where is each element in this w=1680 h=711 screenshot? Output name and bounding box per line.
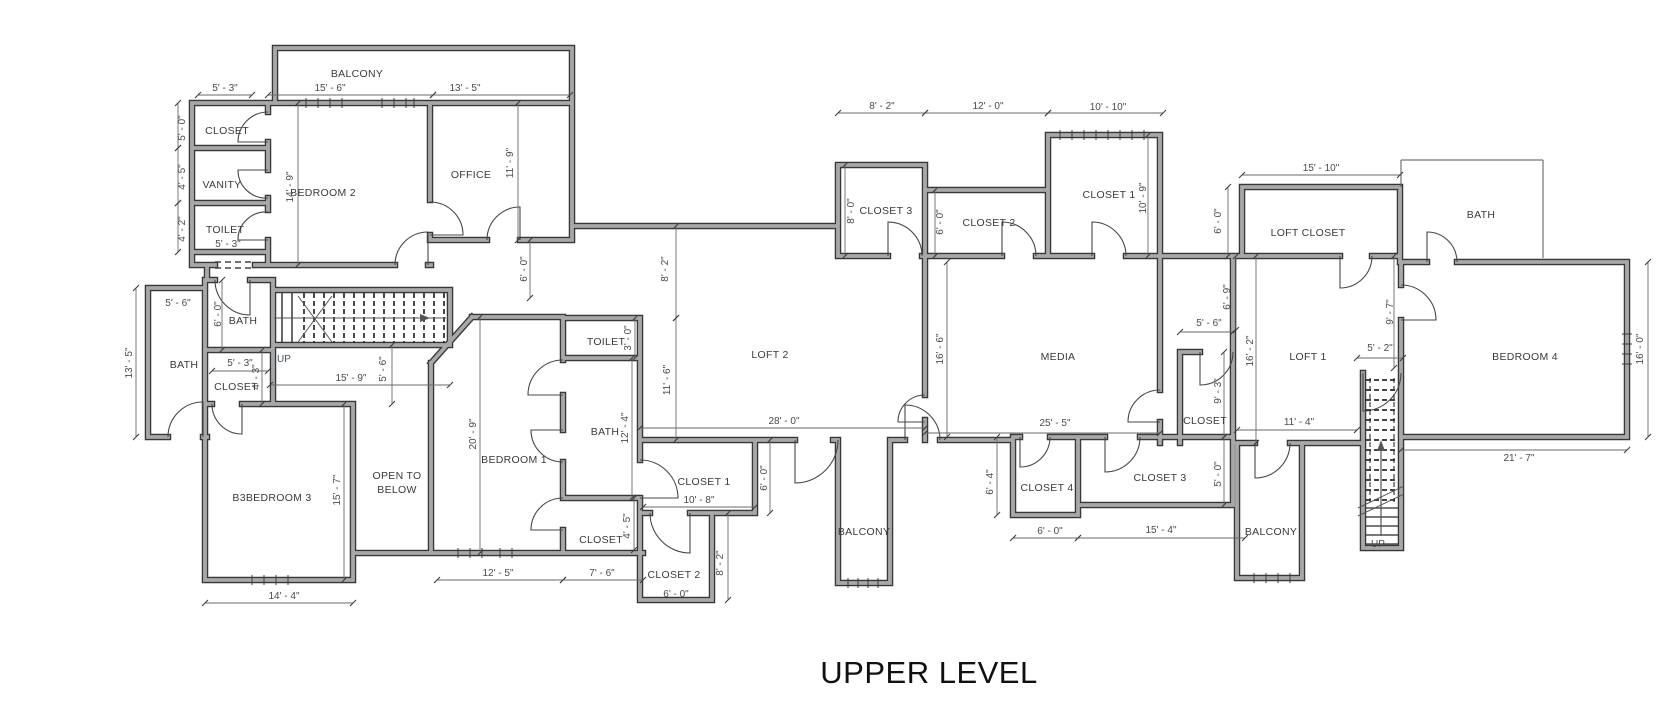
room-label: LOFT 2: [751, 349, 788, 361]
dim-label: 4' - 3": [251, 364, 262, 390]
dim-label: 5' - 6": [378, 356, 389, 382]
room-label: BATH: [591, 426, 619, 438]
dim-label: 14' - 9": [285, 171, 296, 202]
room-label: CLOSET: [205, 125, 249, 137]
dim-label: 9' - 7": [1385, 299, 1396, 325]
room-label: MEDIA: [1041, 351, 1076, 363]
dim-label: 20' - 9": [468, 418, 479, 449]
dim-label: 6' - 0": [1213, 208, 1224, 234]
room-label: CLOSET 2: [963, 217, 1016, 229]
room-label: TOILET: [206, 224, 245, 236]
stairs-up-label: UP: [277, 354, 291, 365]
room-label: B3BEDROOM 3: [232, 492, 311, 504]
dim-label: 14' - 4": [268, 591, 299, 602]
dim-label: 8' - 2": [660, 256, 671, 282]
dim-label: 12' - 4": [620, 412, 631, 443]
room-label: LOFT CLOSET: [1271, 227, 1346, 239]
dim-label: 12' - 5": [482, 568, 513, 579]
dim-label: 6' - 0": [759, 465, 770, 491]
room-label: BEDROOM 2: [290, 187, 356, 199]
stair-arrowhead: [420, 314, 430, 322]
door-swings-layer: [168, 112, 1457, 553]
dim-label: 4' - 2": [177, 216, 188, 242]
dim-label: 15' - 4": [1145, 525, 1176, 536]
door-swing: [531, 498, 563, 530]
dim-label: 11' - 6": [662, 364, 673, 395]
dim-label: 5' - 0": [1213, 461, 1224, 487]
room-label: BATH: [229, 315, 257, 327]
dim-label: 8' - 2": [869, 101, 895, 112]
door-swing: [1401, 285, 1436, 320]
room-label: OPEN TO: [373, 470, 422, 482]
dim-label: 7' - 6": [589, 568, 615, 579]
dim-label: 5' - 3": [227, 358, 253, 369]
dim-label: 9' - 3": [1213, 378, 1224, 404]
dim-label: 5' - 6": [165, 298, 191, 309]
room-label: BALCONY: [838, 526, 890, 538]
door-swing: [1092, 222, 1126, 256]
dim-label: 15' - 7": [332, 474, 343, 505]
door-swing: [1255, 443, 1290, 478]
dim-label: 6' - 0": [1037, 526, 1063, 537]
dim-label: 5' - 2": [1367, 343, 1393, 354]
room-label: VANITY: [203, 179, 242, 191]
floor-plan-drawing: BALCONYCLOSETVANITYTOILETBEDROOM 2OFFICE…: [0, 0, 1680, 711]
dim-label: 3' - 0": [623, 325, 634, 351]
dim-label: 6' - 9": [1222, 284, 1233, 310]
stair-arrowhead: [1377, 440, 1385, 451]
door-swing: [640, 460, 678, 498]
dim-label: 5' - 0": [177, 115, 188, 141]
dim-label: 6' - 4": [985, 469, 996, 495]
door-swing: [168, 402, 203, 437]
walls-outline: [148, 48, 1627, 600]
walls-outline-layer: [148, 48, 1627, 600]
dim-label: 4' - 5": [177, 164, 188, 190]
room-label: CLOSET 3: [1134, 472, 1187, 484]
plan-title: UPPER LEVEL: [820, 655, 1037, 690]
dim-label: 16' - 2": [1245, 335, 1256, 366]
dim-label: 15' - 9": [335, 373, 366, 384]
dim-label: 13' - 5": [124, 347, 135, 378]
room-label: CLOSET: [579, 534, 623, 546]
dim-label: 25' - 5": [1039, 418, 1070, 429]
room-label: OFFICE: [451, 169, 491, 181]
room-dim-label: 10' - 8": [683, 495, 714, 506]
door-swing: [888, 222, 922, 256]
dim-label: 6' - 0": [519, 256, 530, 282]
door-swing: [238, 170, 268, 198]
dim-label: 10' - 9": [1138, 182, 1149, 213]
door-swing: [1427, 232, 1457, 262]
room-label: BATH: [1467, 209, 1495, 221]
dim-label: 5' - 3": [215, 239, 241, 250]
dim-label: 21' - 7": [1503, 453, 1534, 464]
dim-label: 8' - 0": [846, 198, 857, 224]
dim-label: 5' - 6": [1196, 318, 1222, 329]
door-swing: [795, 440, 838, 483]
door-swing: [528, 360, 563, 395]
room-label: BEDROOM 4: [1492, 351, 1558, 363]
room-label: BATH: [170, 359, 198, 371]
room-label: TOILET: [587, 336, 626, 348]
room-label: CLOSET: [1183, 415, 1227, 427]
dim-label: 6' - 0": [213, 301, 224, 327]
room-label: CLOSET 4: [1021, 482, 1074, 494]
door-swing: [1128, 390, 1160, 422]
room-label: BELOW: [377, 484, 416, 496]
dim-label: 15' - 10": [1303, 163, 1340, 174]
dim-label: 16' - 0": [1635, 333, 1646, 364]
door-swing: [487, 207, 520, 240]
floor-plan-page: BALCONYCLOSETVANITYTOILETBEDROOM 2OFFICE…: [0, 0, 1680, 711]
room-label: CLOSET 3: [860, 205, 913, 217]
room-label: CLOSET 2: [648, 569, 701, 581]
door-swing: [1363, 373, 1401, 411]
dim-label: 11' - 9": [505, 147, 516, 178]
dim-label: 15' - 6": [314, 83, 345, 94]
door-swing: [1105, 437, 1140, 472]
room-label: CLOSET 1: [678, 476, 731, 488]
door-swing: [1340, 256, 1372, 288]
door-swing: [1020, 437, 1050, 467]
room-label: BALCONY: [1245, 526, 1297, 538]
dim-label: 10' - 10": [1090, 102, 1127, 113]
dim-label: 28' - 0": [768, 416, 799, 427]
dim-label: 6' - 0": [935, 209, 946, 235]
dim-label: 5' - 3": [212, 83, 238, 94]
door-swing: [430, 202, 463, 235]
door-swing: [650, 513, 690, 553]
room-label: BEDROOM 1: [481, 454, 547, 466]
room-label: LOFT 1: [1289, 351, 1326, 363]
door-swing: [212, 404, 242, 434]
door-swing: [395, 232, 428, 265]
dim-label: 11' - 4": [1284, 417, 1315, 428]
room-label: CLOSET 1: [1083, 189, 1136, 201]
stairs-up-label: UP: [1371, 539, 1385, 550]
dim-label: 4' - 5": [622, 513, 633, 539]
dim-label: 8' - 2": [715, 550, 726, 576]
dim-label: 13' - 5": [449, 83, 480, 94]
dim-label: 12' - 0": [972, 101, 1003, 112]
room-label: BALCONY: [331, 68, 383, 80]
dim-label: 16' - 6": [935, 333, 946, 364]
room-dim-label: 6' - 0": [663, 589, 689, 600]
